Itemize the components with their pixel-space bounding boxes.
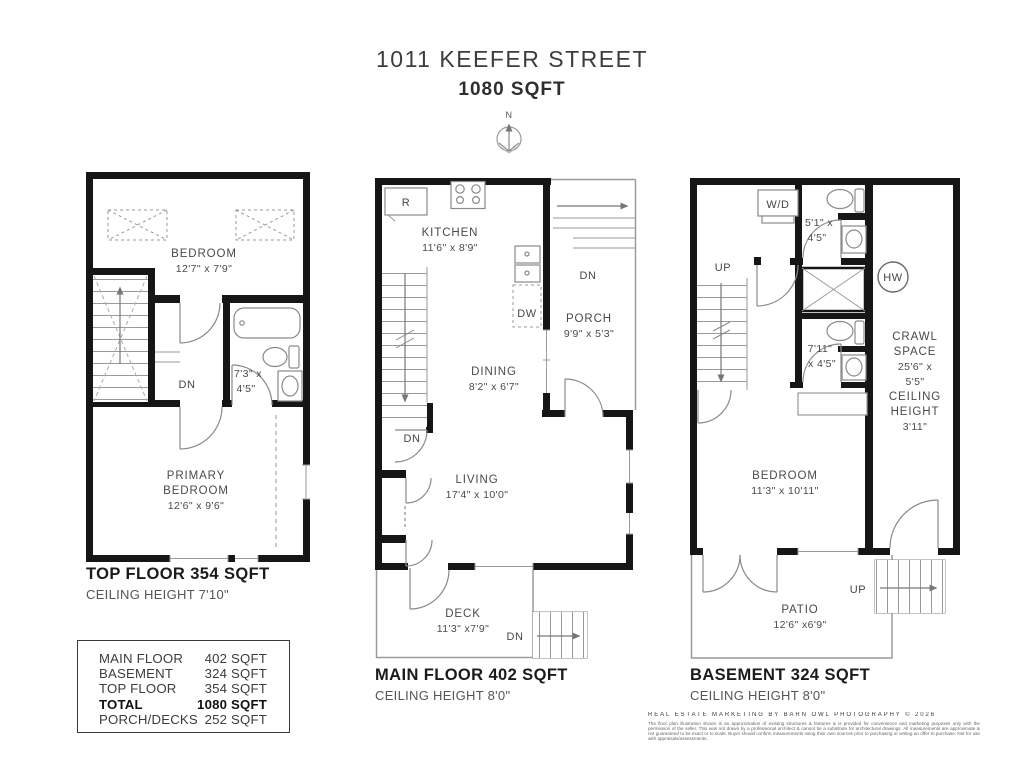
patio-up-label: UP (850, 584, 866, 596)
crawl-label-6: HEIGHT (891, 406, 940, 418)
room-label-bedroom: BEDROOM (171, 248, 237, 260)
page-title: 1011 KEEFER STREET (0, 46, 1024, 73)
table-row: PORCH/DECKS 252 SQFT (99, 712, 267, 727)
basement-windows (703, 548, 938, 555)
room-label-primary-2: BEDROOM (163, 485, 229, 497)
row-label: BASEMENT (99, 666, 173, 681)
shower-icon (802, 268, 865, 311)
toilet-icon (827, 321, 864, 344)
patio-stairs-icon (875, 560, 945, 613)
row-label: TOP FLOOR (99, 681, 177, 696)
dishwasher-icon (513, 285, 541, 327)
main-floor-title: MAIN FLOOR 402 SQFT (375, 666, 568, 685)
main-floor-stairs-icon (382, 267, 427, 427)
room-dims-primary: 12'6" x 9'6" (168, 500, 225, 512)
main-floor-caption: MAIN FLOOR 402 SQFT CEILING HEIGHT 8'0" (375, 666, 568, 703)
crawl-label-4: 5'5" (905, 376, 924, 388)
kitchen-sink-icon (515, 246, 540, 282)
room-label-deck: DECK (445, 608, 481, 620)
top-floor-title: TOP FLOOR 354 SQFT (86, 565, 270, 584)
bathtub-icon (234, 308, 300, 338)
sink-icon (842, 355, 866, 380)
row-value: 252 SQFT (205, 712, 267, 727)
stairs-up-label: UP (715, 262, 731, 274)
room-dims-living: 17'4" x 10'0" (446, 489, 509, 501)
bath-dims-1: 7'3" x (234, 368, 262, 380)
crawl-label-1: CRAWL (892, 331, 938, 343)
bath-dims-2: 4'5" (236, 383, 255, 395)
room-dims-porch: 9'9" x 5'3" (564, 328, 614, 340)
table-row: MAIN FLOOR 402 SQFT (99, 651, 267, 666)
crawl-label-7: 3'11" (903, 421, 927, 433)
row-value: 354 SQFT (205, 681, 267, 696)
room-label-bedroom: BEDROOM (752, 470, 818, 482)
compass-north-icon: N (486, 108, 532, 158)
sink-icon (842, 226, 866, 253)
disclaimer-text: The floor plan illustration shown is an … (648, 721, 980, 741)
page-subtitle: 1080 SQFT (0, 79, 1024, 101)
toilet-icon (263, 346, 299, 368)
main-floor-plan: R DW (375, 178, 640, 660)
compass-n-label: N (506, 110, 513, 120)
area-summary-table: MAIN FLOOR 402 SQFT BASEMENT 324 SQFT TO… (77, 640, 290, 733)
room-dims-dining: 8'2" x 6'7" (469, 381, 519, 393)
table-row-total: TOTAL 1080 SQFT (99, 697, 267, 712)
porch-dn-label: DN (579, 270, 596, 282)
patio-french-doors (703, 555, 777, 592)
porch-steps-icon (553, 206, 635, 248)
toilet-icon (827, 189, 864, 212)
table-row: TOP FLOOR 354 SQFT (99, 681, 267, 696)
deck-dn-label: DN (506, 631, 523, 643)
bath2-dims-2: x 4'5" (808, 358, 836, 370)
dishwasher-label: DW (517, 308, 537, 320)
washer-dryer-label: W/D (766, 199, 789, 211)
basement-ceiling: CEILING HEIGHT 8'0" (690, 688, 870, 703)
basement-stairs-icon (697, 278, 747, 390)
row-label: PORCH/DECKS (99, 712, 198, 727)
basement-plan: W/D HW (690, 178, 960, 660)
room-label-patio: PATIO (781, 604, 818, 616)
row-value: 324 SQFT (205, 666, 267, 681)
room-dims-kitchen: 11'6" x 8'9" (422, 242, 478, 254)
room-dims-patio: 12'6" x6'9" (773, 619, 826, 631)
room-label-living: LIVING (455, 474, 498, 486)
row-value: 1080 SQFT (197, 697, 267, 712)
skylight-icon (108, 210, 294, 240)
main-floor-ceiling: CEILING HEIGHT 8'0" (375, 688, 568, 703)
floorplan-page: 1011 KEEFER STREET 1080 SQFT N (0, 0, 1024, 768)
stairs-dn-label: DN (178, 379, 195, 391)
room-label-kitchen: KITCHEN (422, 227, 479, 239)
room-dims-deck: 11'3" x7'9" (437, 623, 489, 635)
water-heater-label: HW (883, 272, 903, 284)
page-header: 1011 KEEFER STREET 1080 SQFT (0, 46, 1024, 101)
row-label: TOTAL (99, 697, 143, 712)
top-floor-stairs-icon (93, 275, 180, 402)
porch-outline (551, 180, 636, 411)
basement-caption: BASEMENT 324 SQFT CEILING HEIGHT 8'0" (690, 666, 870, 703)
row-label: MAIN FLOOR (99, 651, 183, 666)
table-row: BASEMENT 324 SQFT (99, 666, 267, 681)
stairs-dn-label: DN (403, 433, 420, 445)
crawl-label-2: SPACE (894, 346, 937, 358)
credit-line: REAL ESTATE MARKETING BY BARN OWL PHOTOG… (648, 712, 980, 718)
fridge-label: R (402, 197, 411, 209)
room-label-primary-1: PRIMARY (167, 470, 226, 482)
room-dims-bedroom: 12'7" x 7'9" (176, 263, 233, 275)
crawl-label-3: 25'6" x (898, 361, 933, 373)
row-value: 402 SQFT (205, 651, 267, 666)
top-floor-ceiling: CEILING HEIGHT 7'10" (86, 587, 270, 602)
closet (798, 393, 867, 415)
top-floor-caption: TOP FLOOR 354 SQFT CEILING HEIGHT 7'10" (86, 565, 270, 602)
sink-icon (278, 371, 302, 401)
basement-title: BASEMENT 324 SQFT (690, 666, 870, 685)
room-dims-bedroom: 11'3" x 10'11" (751, 485, 818, 497)
crawl-label-5: CEILING (889, 391, 941, 403)
room-label-dining: DINING (471, 366, 517, 378)
top-floor-plan: BEDROOM 12'7" x 7'9" DN 7'3" x 4'5" PRIM… (86, 172, 310, 562)
stove-icon (451, 182, 485, 209)
main-floor-windows (408, 330, 633, 570)
bath2-dims-1: 7'11" (808, 343, 832, 355)
room-label-porch: PORCH (566, 313, 612, 325)
bath1-dims-2: 4'5" (807, 232, 826, 244)
deck-stairs-icon (533, 612, 587, 658)
bath1-dims-1: 5'1" x (805, 217, 833, 229)
